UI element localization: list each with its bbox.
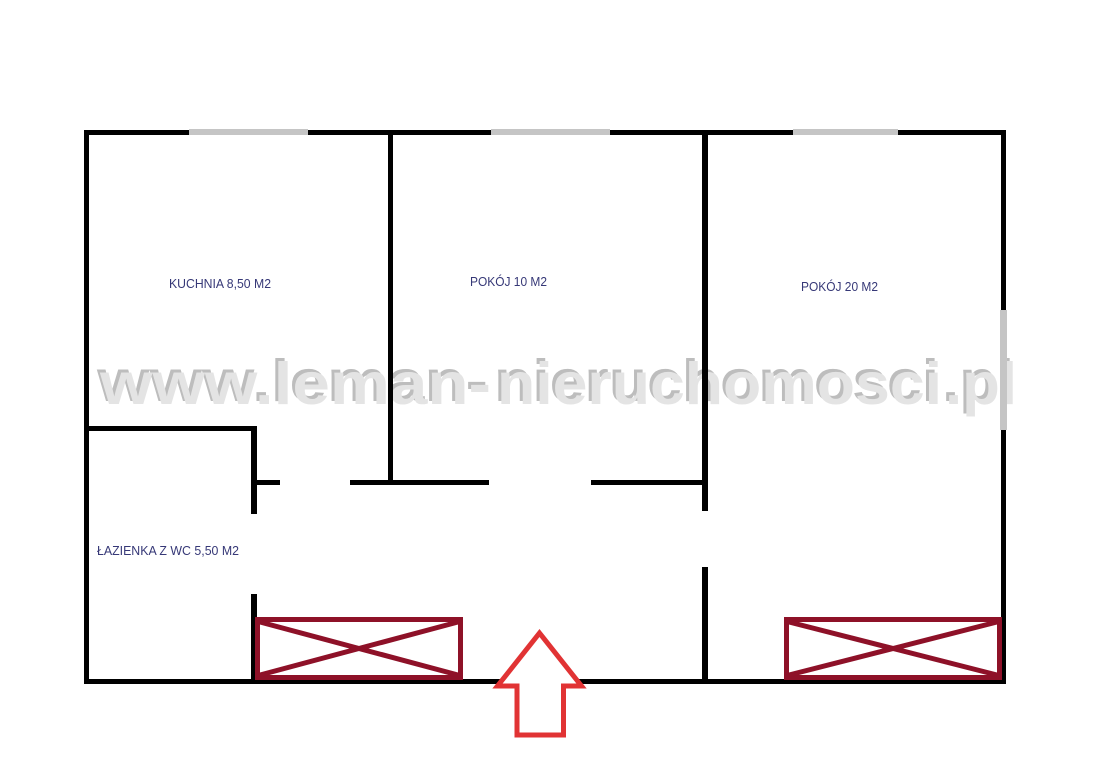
svg-text:nieruchomosci: nieruchomosci (497, 351, 942, 417)
svg-text:www.leman-: www.leman- (99, 351, 491, 417)
svg-text:KUCHNIA 8,50 M2: KUCHNIA 8,50 M2 (169, 276, 271, 291)
svg-text:POKÓJ 10 M2: POKÓJ 10 M2 (470, 274, 547, 289)
svg-text:POKÓJ 20 M2: POKÓJ 20 M2 (801, 279, 878, 294)
svg-text:ŁAZIENKA Z WC 5,50 M2: ŁAZIENKA Z WC 5,50 M2 (97, 543, 239, 558)
